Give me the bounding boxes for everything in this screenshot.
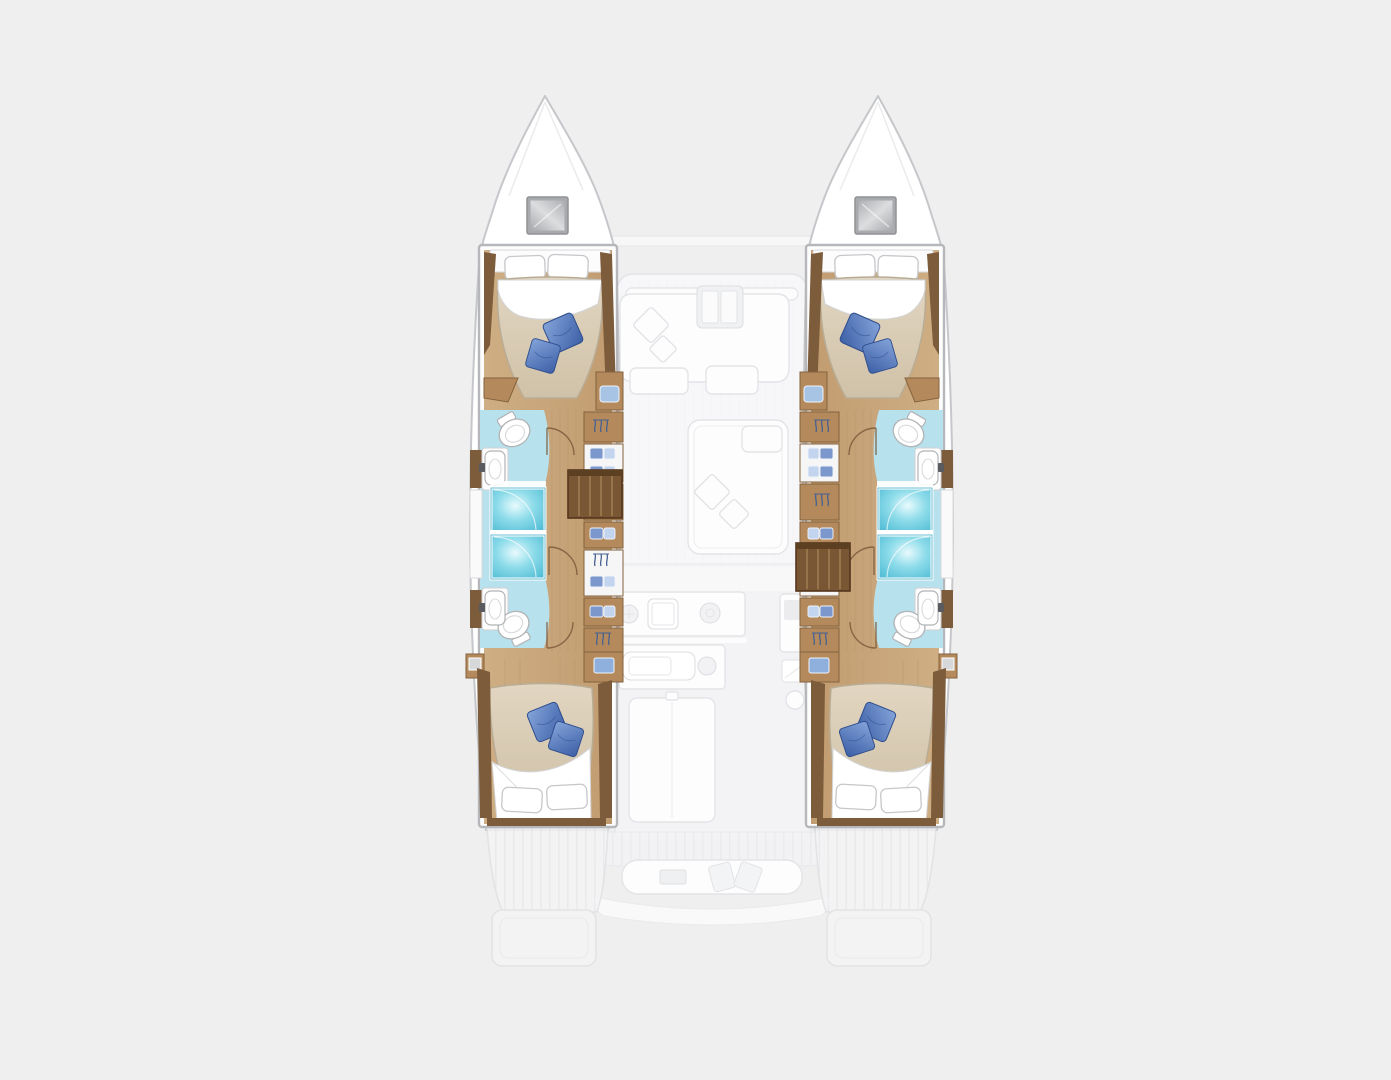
stove-burner-icon (700, 603, 720, 623)
transom-platform (590, 896, 834, 925)
saloon-seat (630, 368, 688, 394)
port-hull (466, 96, 623, 966)
starboard-companionway-stairs (796, 543, 850, 591)
foredeck-crossbeam (598, 236, 826, 246)
galley-double-sink (623, 652, 695, 680)
chaise-armrest (742, 426, 782, 452)
cockpit-table (660, 870, 686, 884)
table-leaf (721, 291, 737, 323)
catamaran-floorplan (0, 0, 1391, 1080)
table-leaf (702, 291, 718, 323)
screenshot-canvas (0, 0, 1391, 1080)
helm-seat (786, 691, 804, 709)
counter-divider (619, 638, 747, 643)
saloon (617, 274, 807, 568)
island-knob (666, 692, 678, 700)
starboard-hull (800, 96, 957, 966)
saloon-seat (706, 366, 758, 394)
stove-burner-icon (698, 657, 716, 675)
cockpit (590, 832, 834, 925)
port-companionway-stairs (568, 470, 622, 518)
